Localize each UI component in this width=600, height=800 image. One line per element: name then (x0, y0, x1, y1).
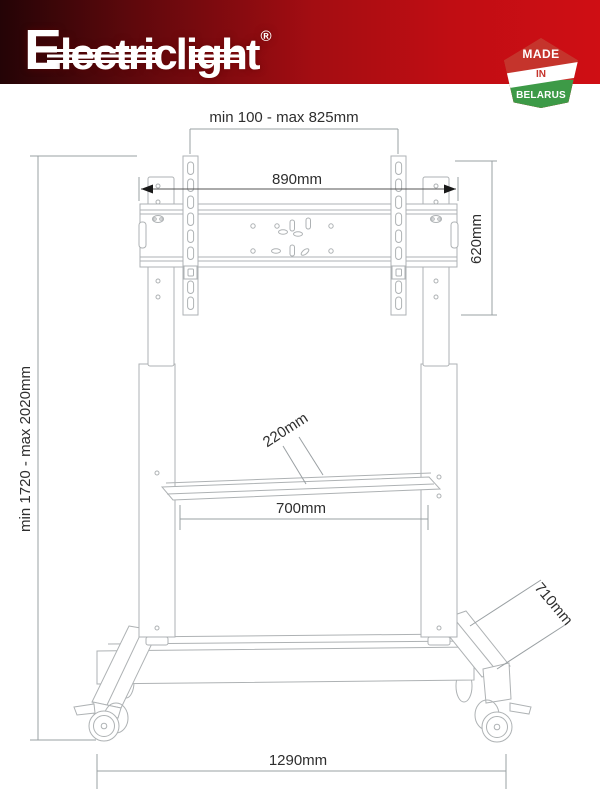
front-casters (89, 700, 512, 742)
dim-mount-width-label: 890mm (272, 171, 322, 188)
dim-base-depth-label: 710mm (531, 579, 576, 628)
dimension-vesa-span: min 100 - max 825mm (190, 109, 398, 154)
dimension-mount-height: 620mm (455, 161, 497, 315)
dim-overall-height-label: min 1720 - max 2020mm (17, 366, 34, 532)
dim-base-width-label: 1290mm (269, 752, 327, 769)
dimension-base-width: 1290mm (97, 752, 506, 789)
technical-drawing: min 100 - max 825mm 890mm 620mm min 1720… (0, 0, 600, 800)
dimension-shelf-width: 700mm (180, 500, 428, 530)
dim-mount-height-label: 620mm (468, 214, 485, 264)
dimension-shelf-depth: 220mm (260, 409, 323, 484)
dim-shelf-width-label: 700mm (276, 500, 326, 517)
shelf (162, 473, 440, 500)
dim-vesa-span-label: min 100 - max 825mm (209, 109, 358, 126)
